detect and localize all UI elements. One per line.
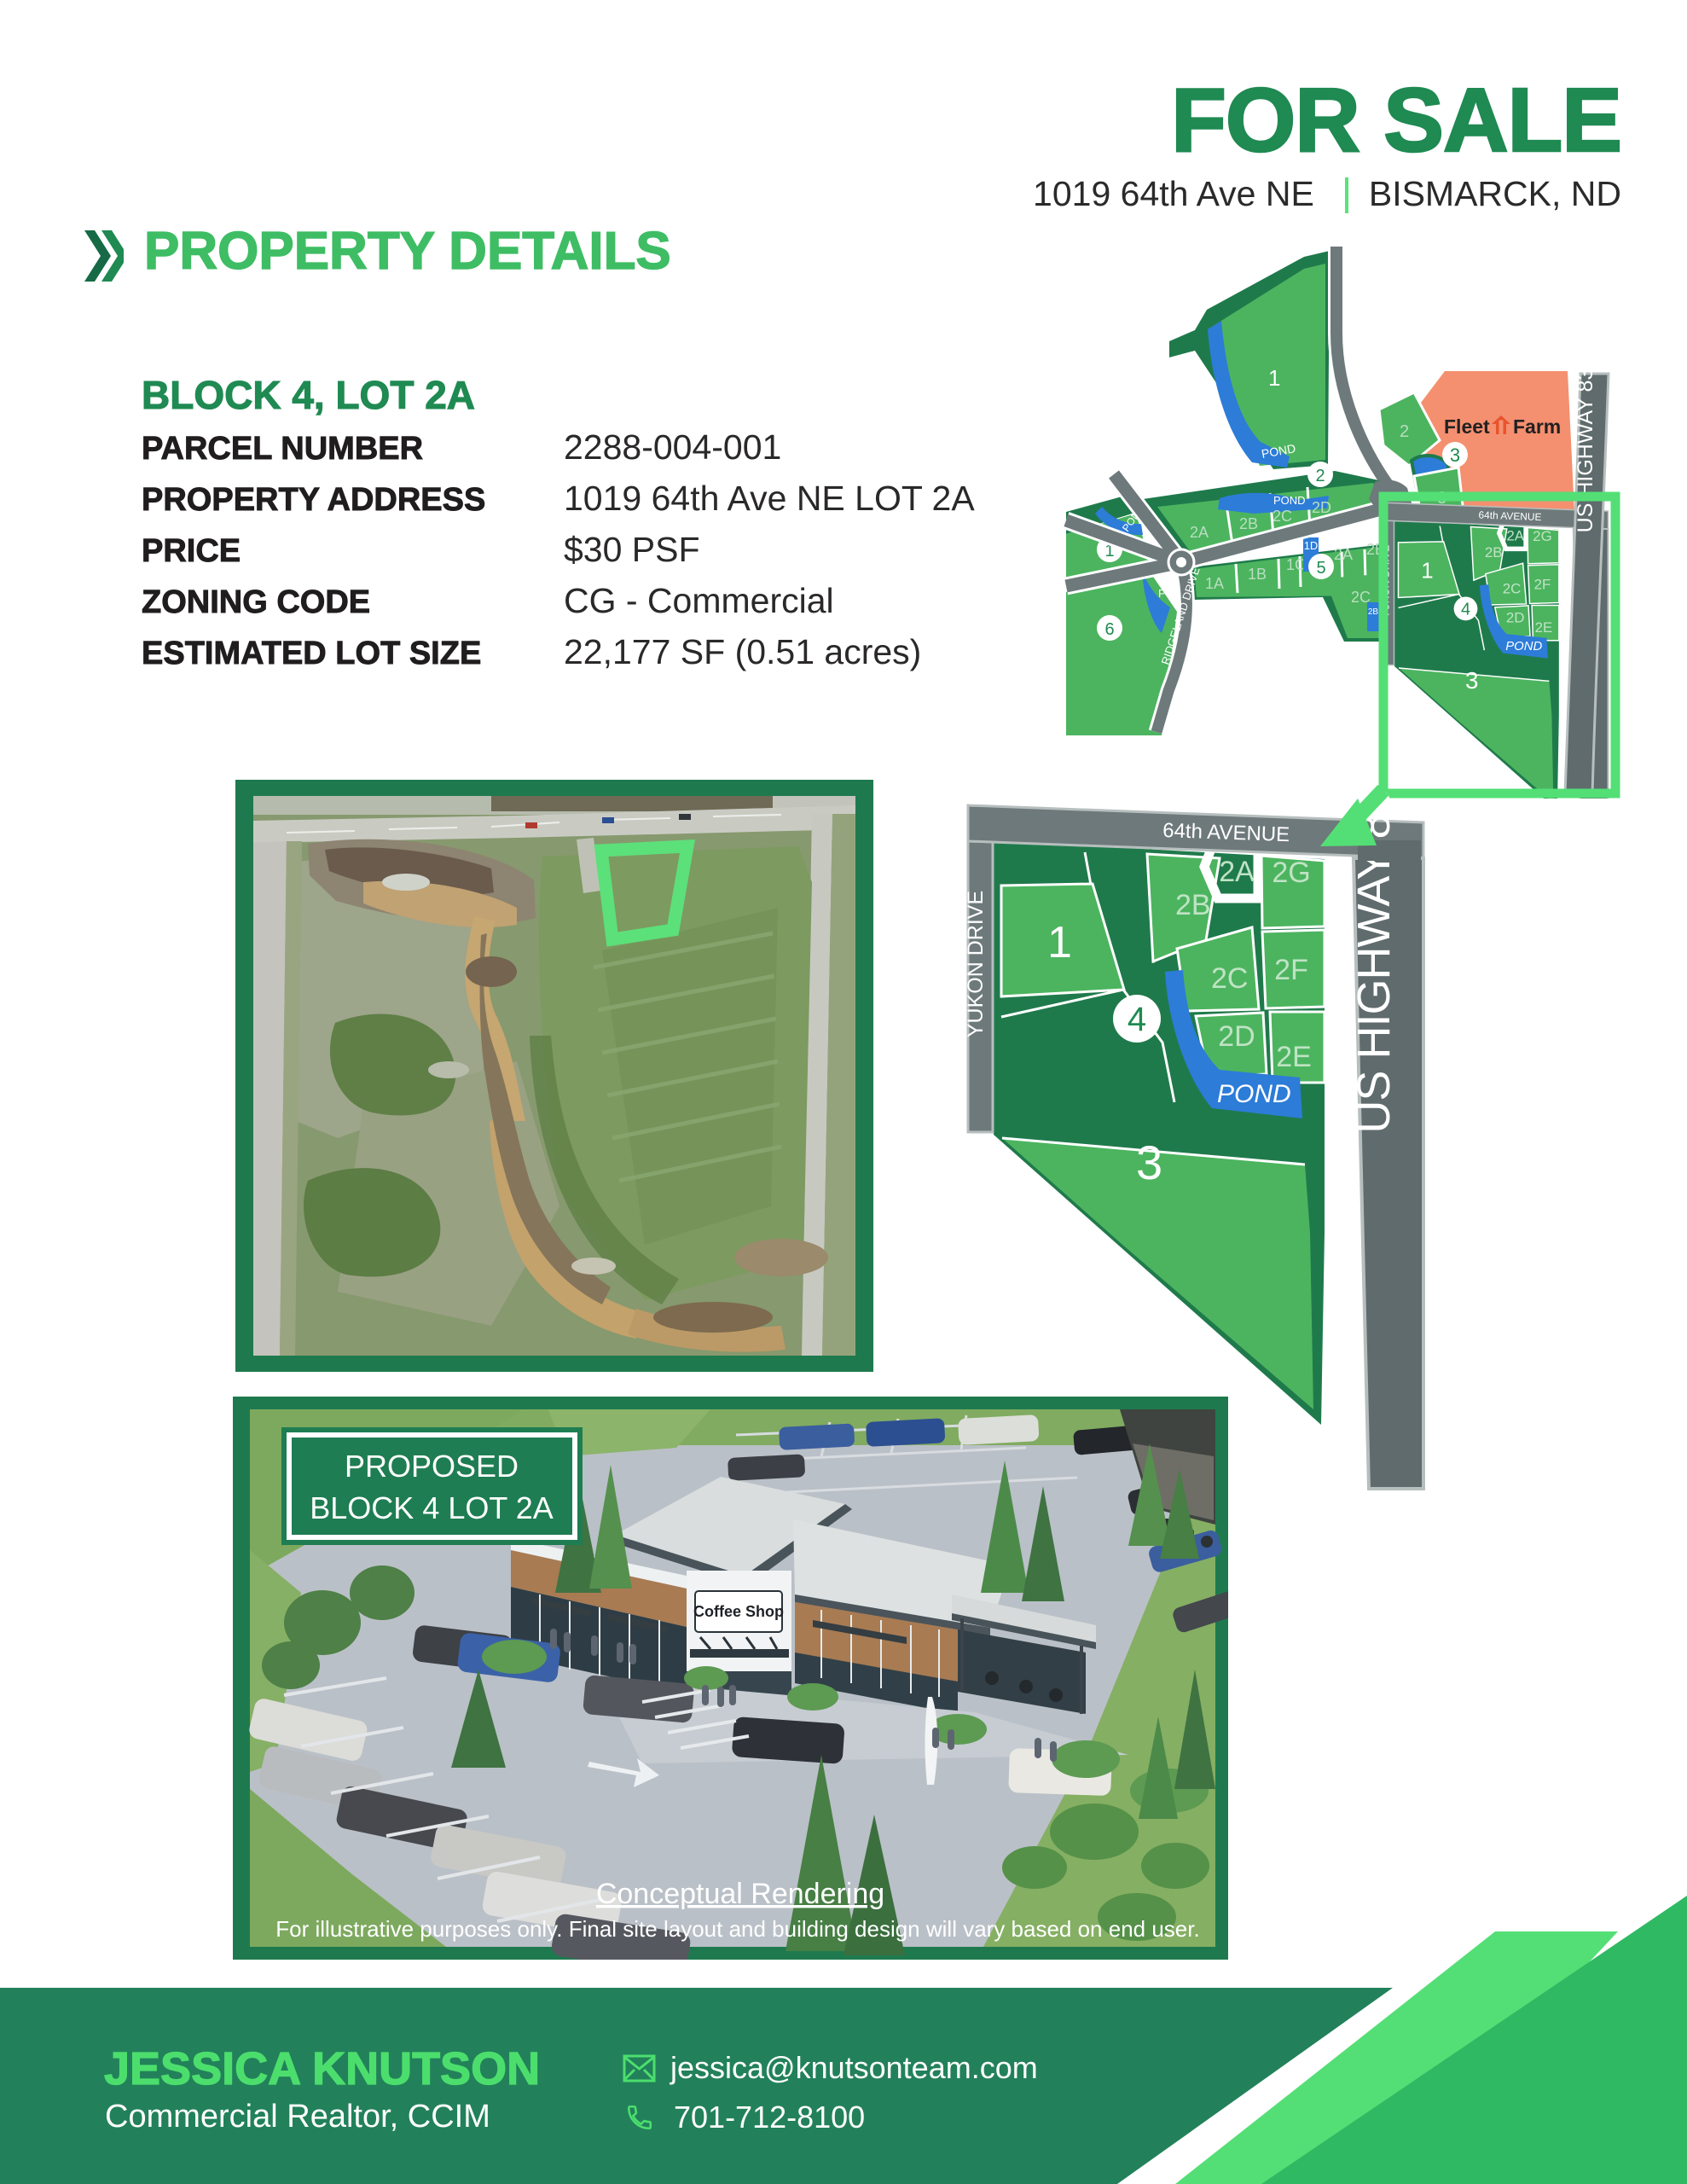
svg-text:2A: 2A — [1334, 546, 1353, 563]
svg-text:1C: 1C — [1286, 556, 1306, 573]
svg-text:1D: 1D — [1304, 539, 1319, 552]
svg-text:2A: 2A — [1190, 524, 1209, 541]
svg-text:2B: 2B — [1239, 515, 1258, 532]
svg-text:Fleet: Fleet — [1444, 415, 1490, 438]
svg-text:6: 6 — [1104, 620, 1114, 639]
svg-text:5: 5 — [1316, 559, 1325, 578]
svg-text:2: 2 — [1400, 422, 1409, 441]
svg-text:BLOCK 4 LOT 2A: BLOCK 4 LOT 2A — [310, 1490, 553, 1525]
svg-text:2B: 2B — [1368, 607, 1379, 617]
svg-text:Coffee Shop: Coffee Shop — [693, 1603, 784, 1620]
svg-text:1: 1 — [1268, 365, 1280, 391]
svg-text:PROPOSED: PROPOSED — [345, 1449, 519, 1484]
svg-text:1B: 1B — [1248, 566, 1267, 583]
svg-text:Farm: Farm — [1513, 415, 1561, 438]
svg-text:2C: 2C — [1272, 508, 1292, 525]
svg-text:3: 3 — [1450, 444, 1460, 466]
svg-text:POND: POND — [1273, 494, 1306, 507]
svg-text:2: 2 — [1315, 467, 1325, 485]
svg-text:US HIGHWAY 83: US HIGHWAY 83 — [1574, 369, 1597, 533]
svg-text:2D: 2D — [1312, 499, 1331, 516]
svg-text:1A: 1A — [1205, 575, 1224, 592]
